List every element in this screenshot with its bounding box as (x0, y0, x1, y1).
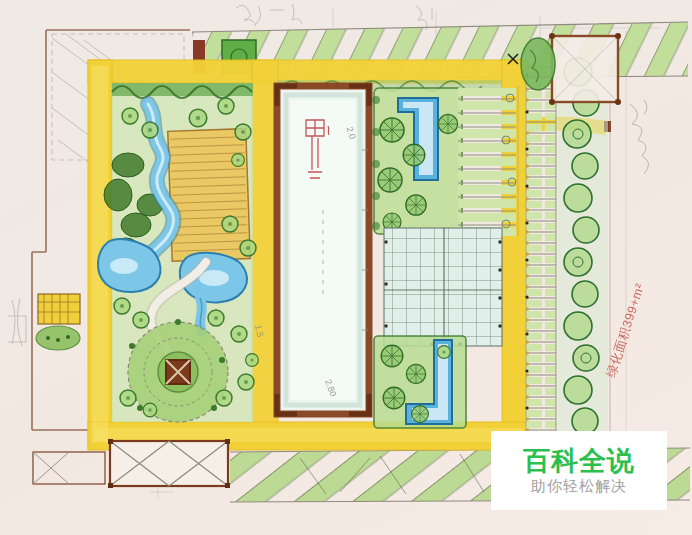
upper-right-bed (372, 88, 462, 234)
pergola-hatched (36, 294, 80, 350)
bottom-left-structures (33, 439, 230, 488)
watermark-subtitle: 助你轻松解决 (531, 478, 627, 493)
watermark-title: 百科全说 (523, 448, 635, 475)
right-hedge-ladder (525, 62, 556, 460)
timber-deck (168, 129, 250, 262)
watermark-card: 百科全说 助你轻松解决 (491, 431, 667, 510)
lower-right-bed (374, 336, 466, 428)
scanned-garden-plan: 绿化面积399+m² 2.0 1.5 2.80 百科全说 助你轻松解决 (0, 0, 692, 535)
hedge-rows (458, 86, 518, 236)
right-tree-column (556, 58, 610, 462)
grid-plaza (384, 228, 502, 346)
